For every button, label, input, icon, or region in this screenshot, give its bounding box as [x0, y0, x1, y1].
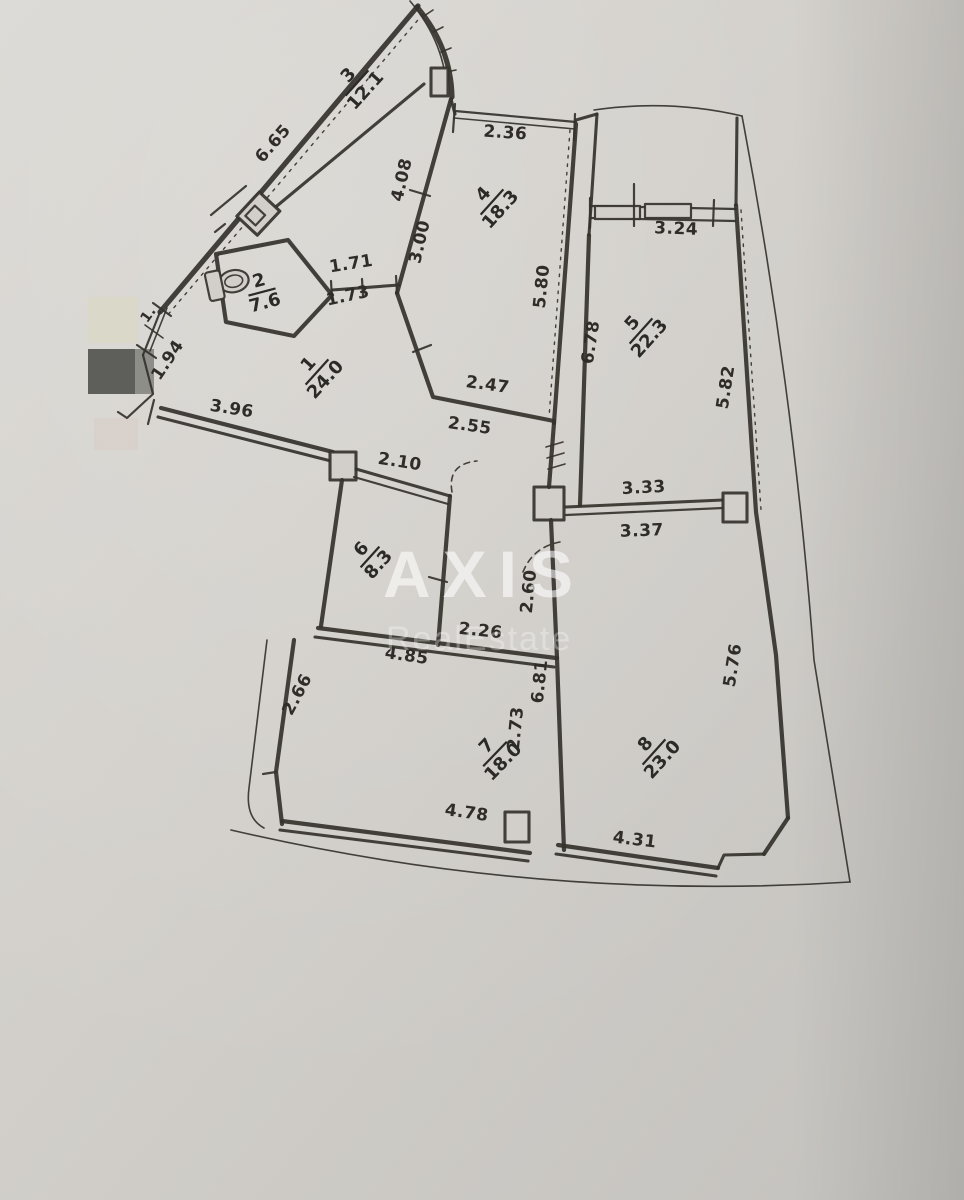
pink-smudge [94, 418, 138, 450]
floorplan-photo: 6.65 1. 1.94 3.96 4.08 3.00 2.36 5.80 3.… [0, 0, 964, 1200]
watermark: AXIS RealEstate [383, 537, 585, 658]
corridor-column-left [534, 487, 564, 520]
room7-column [505, 812, 529, 842]
floorplan-svg: 6.65 1. 1.94 3.96 4.08 3.00 2.36 5.80 3.… [0, 0, 964, 1200]
dim-3-33: 3.33 [621, 477, 666, 499]
curve-column [431, 68, 448, 96]
balcony-right-wall [736, 118, 737, 205]
dim-3-37: 3.37 [620, 520, 665, 542]
dim-3-24: 3.24 [654, 218, 699, 240]
watermark-brand: AXIS [383, 537, 585, 611]
redaction-pale-block [88, 297, 138, 343]
watermark-subtitle: RealEstate [386, 620, 572, 658]
room6-column [330, 452, 356, 480]
dim-2-36: 2.36 [483, 122, 528, 145]
redaction-dark-block [88, 349, 135, 394]
corridor-column-right [723, 493, 747, 522]
